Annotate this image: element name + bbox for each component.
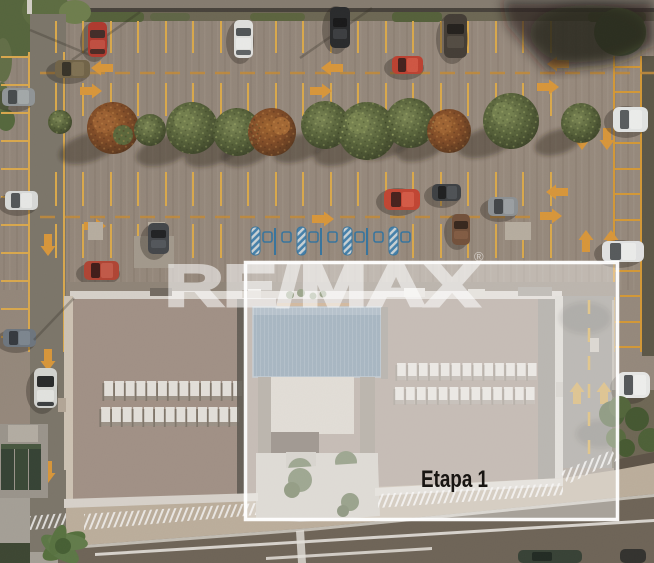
svg-text:®: ® — [474, 249, 484, 264]
svg-text:Etapa 1: Etapa 1 — [421, 466, 488, 493]
svg-text:RE/MAX: RE/MAX — [165, 254, 479, 319]
